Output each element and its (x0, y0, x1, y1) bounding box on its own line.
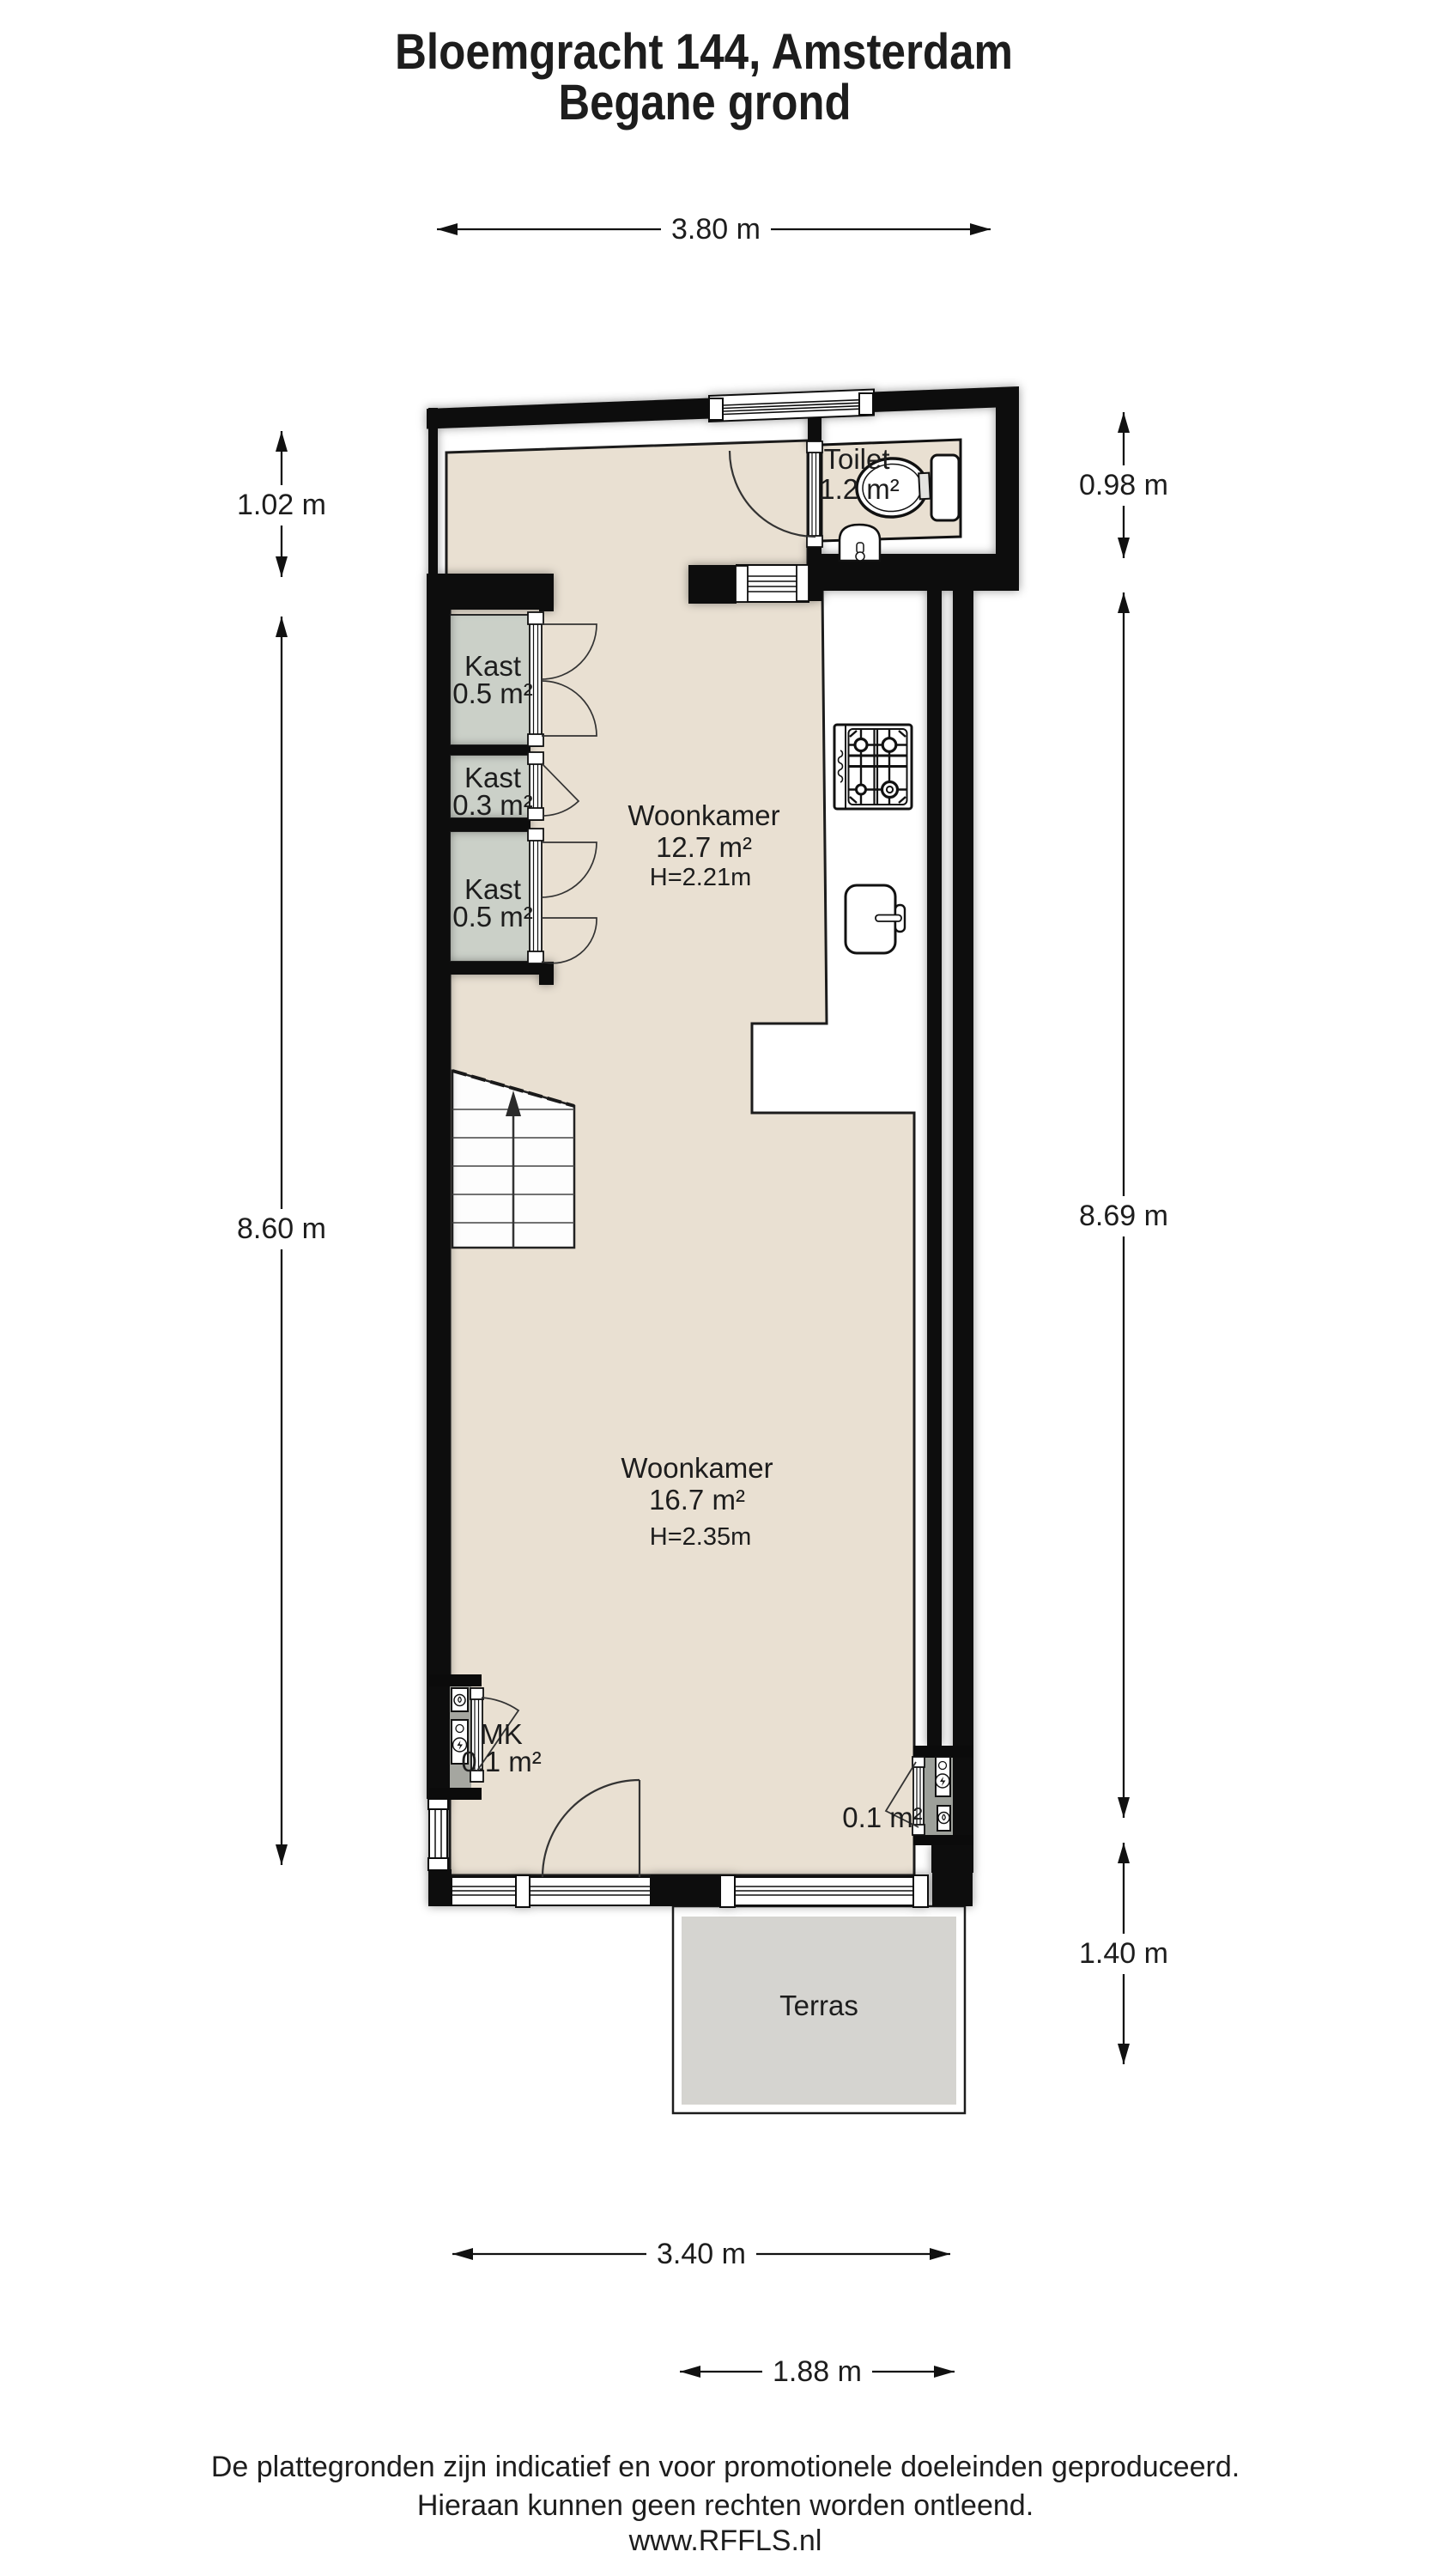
svg-text:3.80 m: 3.80 m (671, 213, 761, 246)
svg-text:3.40 m: 3.40 m (657, 2238, 746, 2270)
svg-text:1.2 m²: 1.2 m² (819, 473, 900, 505)
svg-text:Hieraan kunnen geen rechten wo: Hieraan kunnen geen rechten worden ontle… (417, 2489, 1034, 2522)
svg-text:1.40 m: 1.40 m (1079, 1937, 1168, 1970)
svg-text:Woonkamer: Woonkamer (621, 1452, 773, 1484)
svg-text:8.69 m: 8.69 m (1079, 1200, 1168, 1232)
svg-text:H=2.21m: H=2.21m (650, 864, 751, 891)
svg-text:0.5 m²: 0.5 m² (452, 677, 533, 709)
svg-text:De plattegronden zijn indicati: De plattegronden zijn indicatief en voor… (211, 2451, 1240, 2483)
svg-text:Terras: Terras (779, 1990, 858, 2021)
svg-text:0.3 m²: 0.3 m² (452, 789, 533, 821)
svg-text:www.RFFLS.nl: www.RFFLS.nl (628, 2524, 822, 2557)
svg-text:Woonkamer: Woonkamer (627, 799, 779, 831)
svg-text:1.88 m: 1.88 m (773, 2355, 862, 2388)
svg-text:Toilet: Toilet (823, 443, 889, 475)
svg-text:0.98 m: 0.98 m (1079, 469, 1168, 501)
svg-text:0.1 m²: 0.1 m² (842, 1801, 923, 1833)
svg-text:Bloemgracht 144, Amsterdam: Bloemgracht 144, Amsterdam (395, 24, 1013, 80)
svg-text:12.7 m²: 12.7 m² (656, 831, 752, 863)
svg-text:0.1 m²: 0.1 m² (461, 1746, 542, 1777)
svg-text:Begane grond: Begane grond (559, 75, 852, 131)
svg-text:16.7 m²: 16.7 m² (649, 1484, 745, 1516)
svg-text:8.60 m: 8.60 m (237, 1212, 326, 1245)
svg-text:1.02 m: 1.02 m (237, 489, 326, 521)
svg-text:0.5 m²: 0.5 m² (452, 901, 533, 933)
svg-text:H=2.35m: H=2.35m (650, 1523, 751, 1551)
